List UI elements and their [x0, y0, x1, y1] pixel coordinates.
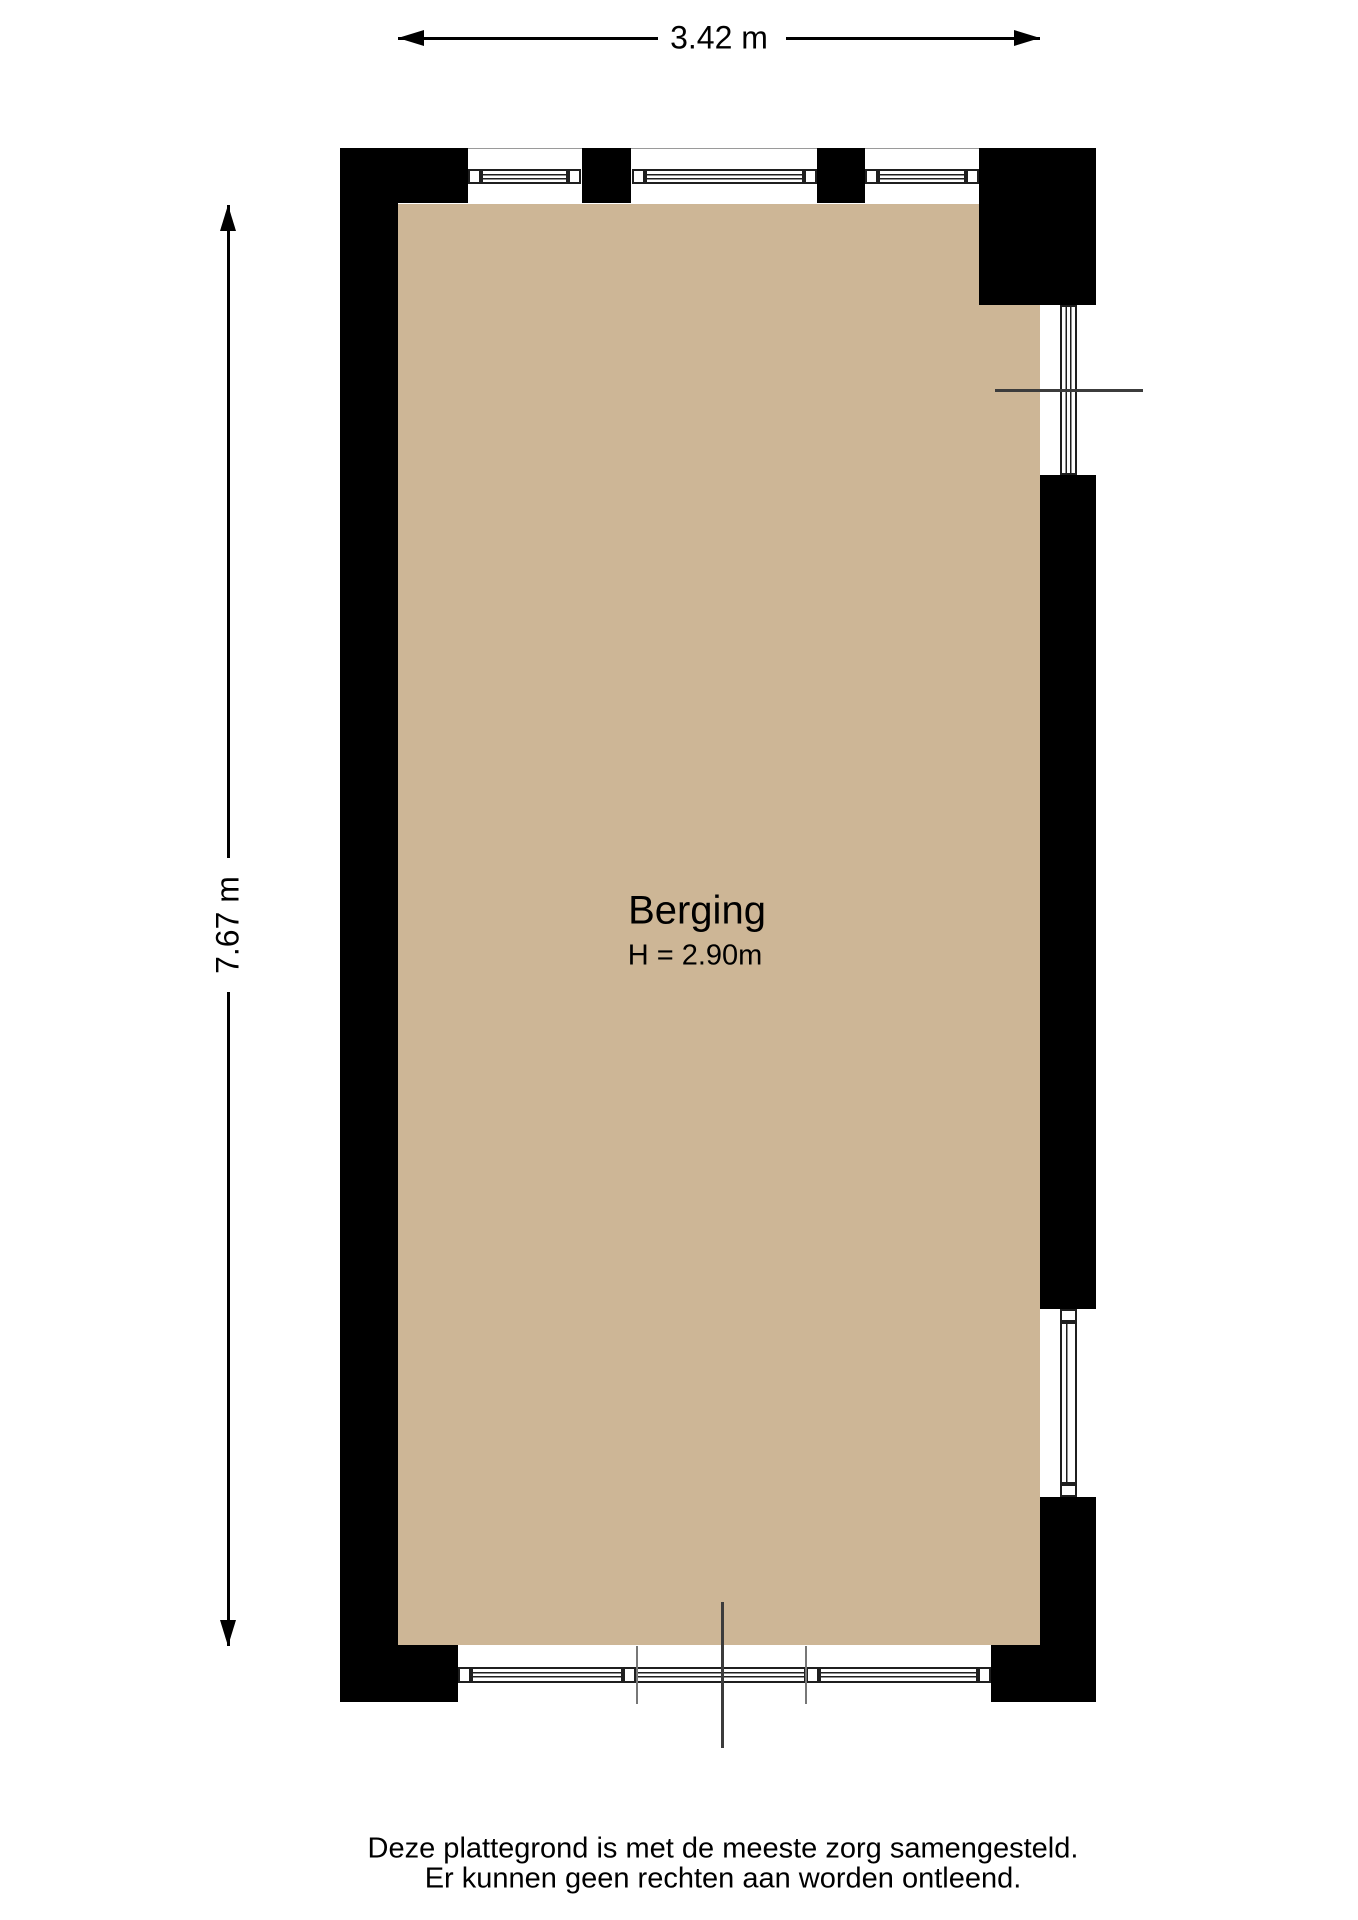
left-dimension-line-bottom-segment: [227, 992, 230, 1646]
room-height-label: H = 2.90m: [628, 940, 763, 973]
wall-pillar-top-1: [582, 148, 631, 203]
wall-right-middle: [1040, 475, 1096, 1309]
wall-corner-bottom-right: [991, 1645, 1096, 1702]
section-marker-vertical: [721, 1602, 724, 1748]
window-right-lower: [1060, 1322, 1077, 1484]
window-top-3: [878, 169, 966, 184]
wall-corner-top-left: [340, 148, 468, 203]
height-dimension-label: 7.67 m: [210, 876, 247, 974]
window-cap: [1060, 1309, 1077, 1322]
window-cap: [978, 1667, 991, 1683]
arrow-left-icon: [398, 30, 424, 46]
wall-corner-top-right: [979, 148, 1096, 305]
wall-corner-bottom-left: [340, 1645, 458, 1702]
window-cap: [468, 169, 481, 184]
window-bottom-3: [819, 1667, 978, 1683]
arrow-down-icon: [220, 1620, 236, 1646]
wall-left: [340, 148, 398, 1702]
window-cap: [806, 1667, 819, 1683]
window-bottom-1: [471, 1667, 623, 1683]
disclaimer-line-1: Deze plattegrond is met de meeste zorg s…: [368, 1833, 1079, 1866]
section-marker-horizontal: [995, 389, 1143, 392]
window-cap: [632, 169, 645, 184]
window-cap: [458, 1667, 471, 1683]
floorplan-page: 3.42 m 7.67 m Berging H = 2.9: [0, 0, 1358, 1920]
window-cap: [568, 169, 581, 184]
wall-pillar-top-2: [817, 148, 865, 203]
window-top-1: [481, 169, 568, 184]
room-name-label: Berging: [628, 889, 766, 934]
arrow-up-icon: [220, 205, 236, 231]
width-dimension-label: 3.42 m: [670, 20, 768, 57]
window-cap: [966, 169, 979, 184]
top-dimension-line-left-segment: [398, 37, 658, 40]
window-cap: [804, 169, 817, 184]
window-junction-line: [805, 1646, 807, 1704]
window-top-2: [645, 169, 804, 184]
window-cap: [1060, 1484, 1077, 1497]
window-cap: [865, 169, 878, 184]
window-cap: [623, 1667, 636, 1683]
window-junction-line: [636, 1646, 638, 1704]
disclaimer-line-2: Er kunnen geen rechten aan worden ontlee…: [425, 1863, 1022, 1896]
left-dimension-line-top-segment: [227, 205, 230, 858]
top-dimension-line-right-segment: [786, 37, 1040, 40]
arrow-right-icon: [1014, 30, 1040, 46]
